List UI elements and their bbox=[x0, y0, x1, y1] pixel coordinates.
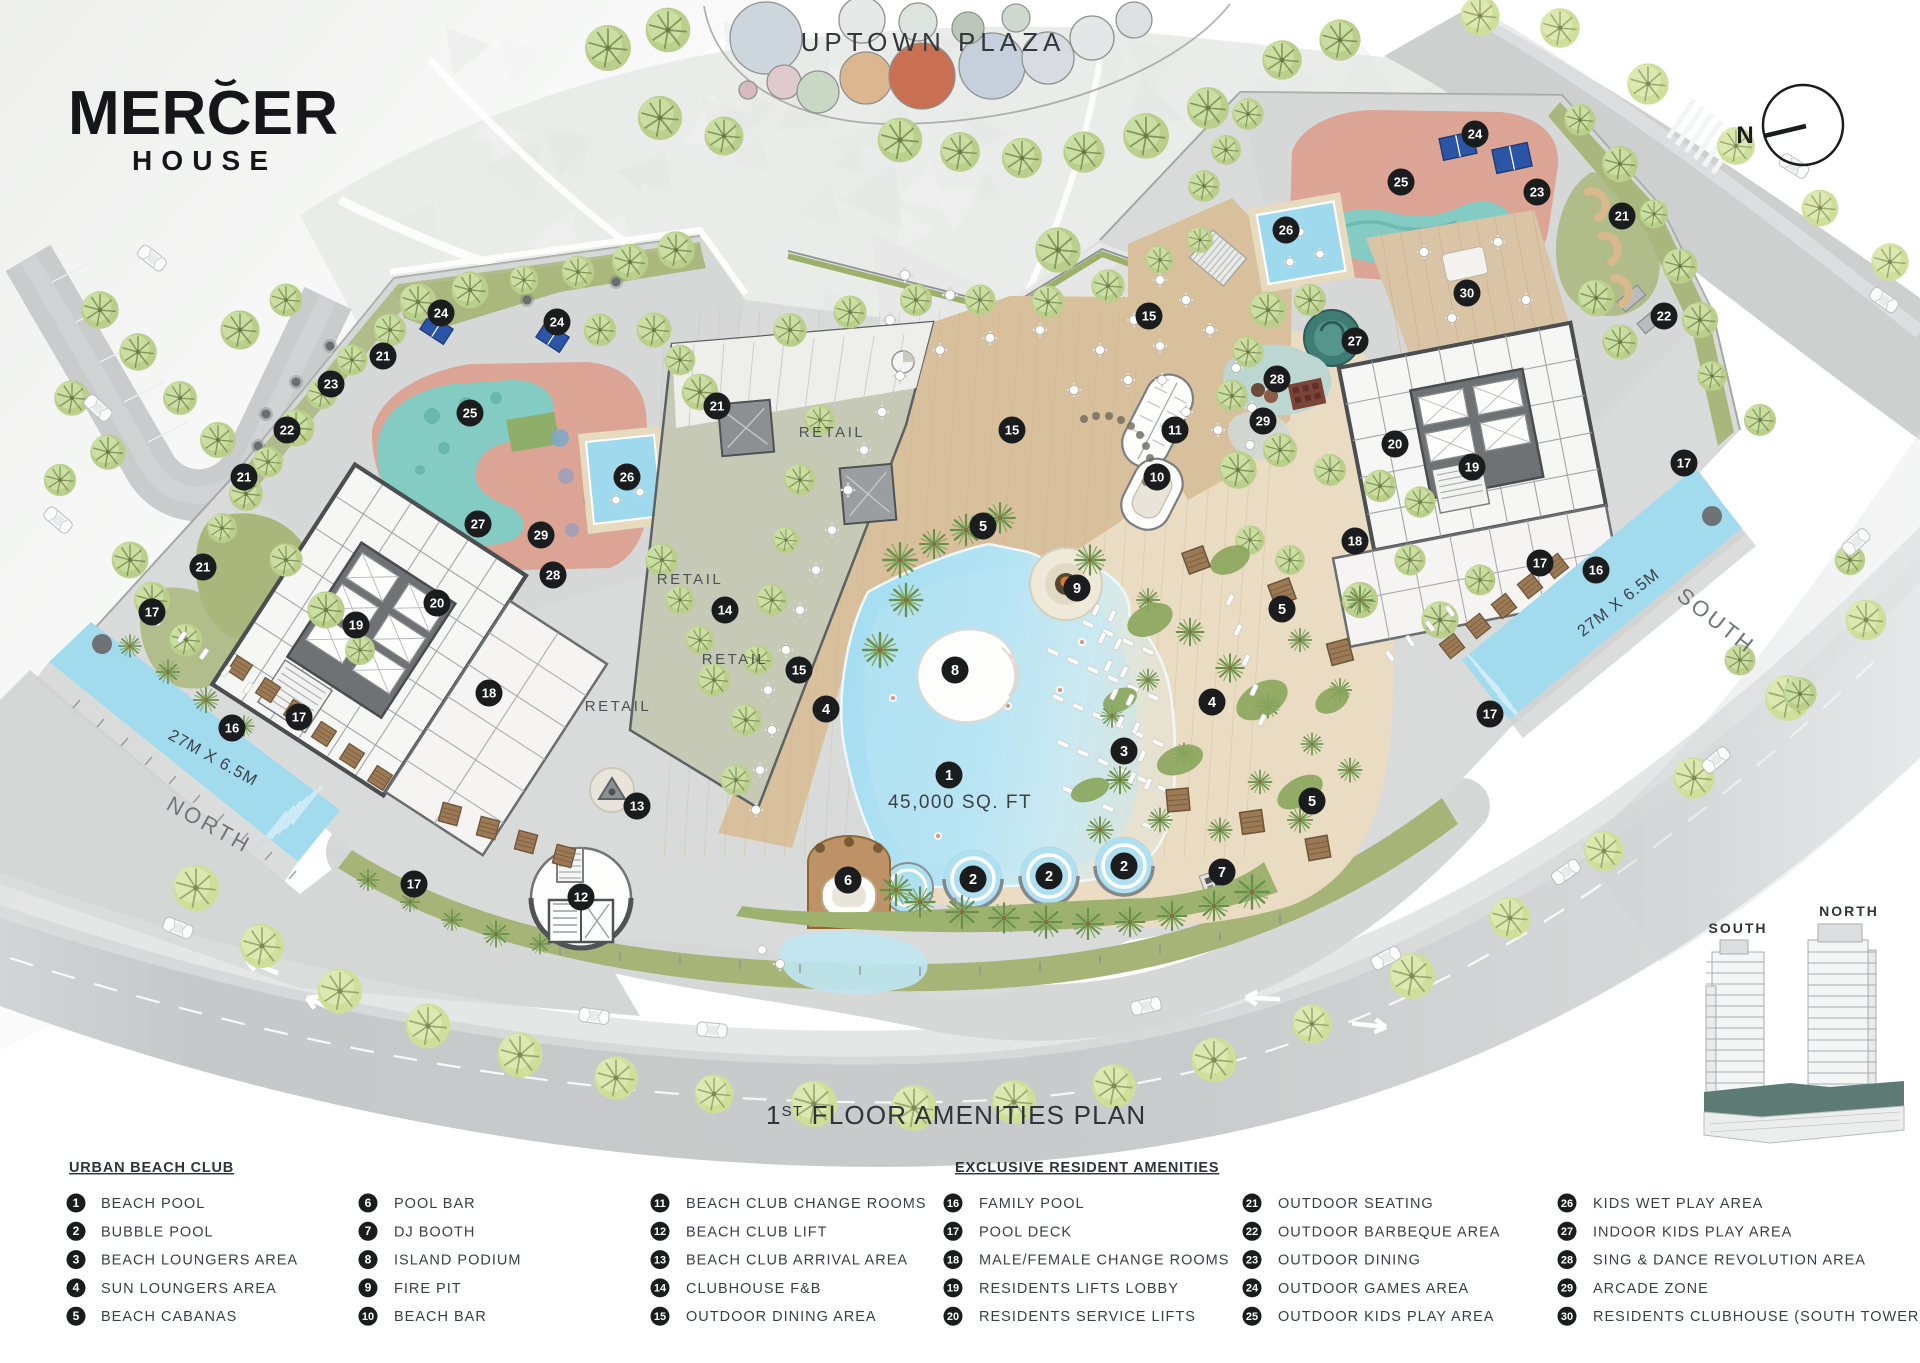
svg-text:RETAIL: RETAIL bbox=[702, 651, 768, 668]
svg-text:45,000 SQ. FT: 45,000 SQ. FT bbox=[888, 792, 1032, 813]
svg-text:17: 17 bbox=[1677, 456, 1691, 471]
svg-text:1: 1 bbox=[945, 768, 953, 784]
svg-text:FIRE PIT: FIRE PIT bbox=[394, 1281, 462, 1297]
svg-text:MALE/FEMALE CHANGE ROOMS: MALE/FEMALE CHANGE ROOMS bbox=[979, 1253, 1229, 1269]
svg-text:29: 29 bbox=[534, 528, 548, 543]
svg-text:18: 18 bbox=[1348, 534, 1362, 549]
svg-text:15: 15 bbox=[1005, 423, 1019, 438]
svg-text:5: 5 bbox=[979, 519, 987, 535]
svg-text:19: 19 bbox=[947, 1283, 959, 1295]
svg-text:UPTOWN PLAZA: UPTOWN PLAZA bbox=[801, 27, 1066, 57]
svg-text:POOL DECK: POOL DECK bbox=[979, 1224, 1072, 1240]
svg-text:3: 3 bbox=[1120, 744, 1128, 760]
svg-text:5: 5 bbox=[1278, 602, 1286, 618]
svg-text:BEACH CLUB ARRIVAL AREA: BEACH CLUB ARRIVAL AREA bbox=[686, 1253, 908, 1269]
svg-text:27: 27 bbox=[1561, 1226, 1573, 1238]
svg-text:RESIDENTS SERVICE LIFTS: RESIDENTS SERVICE LIFTS bbox=[979, 1309, 1196, 1325]
svg-text:24: 24 bbox=[434, 306, 449, 321]
svg-text:OUTDOOR SEATING: OUTDOOR SEATING bbox=[1278, 1196, 1434, 1212]
svg-text:22: 22 bbox=[280, 423, 294, 438]
svg-text:NORTH: NORTH bbox=[1819, 903, 1879, 919]
svg-text:1: 1 bbox=[73, 1196, 80, 1210]
svg-text:23: 23 bbox=[324, 377, 338, 392]
svg-text:13: 13 bbox=[654, 1254, 666, 1266]
svg-text:28: 28 bbox=[546, 568, 560, 583]
svg-text:2: 2 bbox=[1120, 859, 1128, 875]
svg-text:25: 25 bbox=[1394, 175, 1408, 190]
svg-text:27: 27 bbox=[1348, 334, 1362, 349]
svg-text:20: 20 bbox=[947, 1311, 959, 1323]
svg-text:16: 16 bbox=[225, 721, 239, 736]
svg-text:2: 2 bbox=[969, 872, 977, 888]
svg-text:15: 15 bbox=[1142, 309, 1156, 324]
svg-text:BEACH CABANAS: BEACH CABANAS bbox=[101, 1309, 237, 1325]
svg-text:4: 4 bbox=[1208, 695, 1216, 711]
svg-text:28: 28 bbox=[1270, 372, 1284, 387]
svg-text:RESIDENTS CLUBHOUSE (SOUTH TOW: RESIDENTS CLUBHOUSE (SOUTH TOWER) bbox=[1593, 1309, 1920, 1325]
svg-text:20: 20 bbox=[1388, 437, 1402, 452]
svg-text:19: 19 bbox=[349, 618, 363, 633]
svg-text:21: 21 bbox=[376, 349, 390, 364]
svg-text:N: N bbox=[1736, 122, 1753, 149]
svg-text:OUTDOOR DINING AREA: OUTDOOR DINING AREA bbox=[686, 1309, 877, 1325]
svg-text:10: 10 bbox=[362, 1311, 374, 1323]
svg-text:24: 24 bbox=[1246, 1283, 1259, 1295]
svg-text:21: 21 bbox=[710, 399, 724, 414]
svg-text:21: 21 bbox=[1246, 1198, 1258, 1210]
svg-text:17: 17 bbox=[292, 710, 306, 725]
svg-text:INDOOR KIDS PLAY AREA: INDOOR KIDS PLAY AREA bbox=[1593, 1224, 1792, 1240]
svg-text:OUTDOOR KIDS PLAY AREA: OUTDOOR KIDS PLAY AREA bbox=[1278, 1309, 1494, 1325]
svg-text:30: 30 bbox=[1460, 286, 1474, 301]
svg-text:27: 27 bbox=[471, 517, 485, 532]
svg-text:6: 6 bbox=[844, 873, 852, 889]
svg-text:14: 14 bbox=[718, 603, 733, 618]
svg-text:OUTDOOR GAMES AREA: OUTDOOR GAMES AREA bbox=[1278, 1281, 1469, 1297]
svg-text:12: 12 bbox=[654, 1226, 666, 1238]
svg-text:6: 6 bbox=[365, 1196, 372, 1210]
svg-text:19: 19 bbox=[1465, 460, 1479, 475]
svg-text:17: 17 bbox=[947, 1226, 959, 1238]
svg-text:14: 14 bbox=[654, 1283, 667, 1295]
svg-text:URBAN BEACH CLUB: URBAN BEACH CLUB bbox=[69, 1160, 234, 1176]
svg-text:8: 8 bbox=[365, 1252, 372, 1266]
svg-text:5: 5 bbox=[1308, 794, 1316, 810]
svg-text:17: 17 bbox=[1533, 556, 1547, 571]
svg-text:5: 5 bbox=[73, 1309, 80, 1323]
svg-text:4: 4 bbox=[73, 1281, 80, 1295]
svg-text:28: 28 bbox=[1561, 1254, 1573, 1266]
svg-text:21: 21 bbox=[1615, 209, 1629, 224]
svg-text:7: 7 bbox=[365, 1224, 372, 1238]
svg-text:9: 9 bbox=[365, 1281, 372, 1295]
svg-text:26: 26 bbox=[1561, 1198, 1573, 1210]
svg-text:ISLAND PODIUM: ISLAND PODIUM bbox=[394, 1253, 521, 1269]
svg-text:10: 10 bbox=[1150, 470, 1164, 485]
svg-text:8: 8 bbox=[951, 663, 959, 679]
svg-text:23: 23 bbox=[1530, 185, 1544, 200]
svg-text:15: 15 bbox=[792, 663, 806, 678]
svg-text:2: 2 bbox=[73, 1224, 80, 1238]
svg-text:25: 25 bbox=[463, 406, 477, 421]
svg-text:11: 11 bbox=[1168, 423, 1182, 438]
svg-text:22: 22 bbox=[1246, 1226, 1258, 1238]
svg-text:SING & DANCE REVOLUTION AREA: SING & DANCE REVOLUTION AREA bbox=[1593, 1253, 1866, 1269]
svg-text:SOUTH: SOUTH bbox=[1709, 920, 1768, 936]
svg-text:12: 12 bbox=[574, 890, 588, 905]
svg-text:24: 24 bbox=[550, 315, 565, 330]
svg-text:17: 17 bbox=[1483, 707, 1497, 722]
svg-text:1ST FLOOR AMENITIES PLAN: 1ST FLOOR AMENITIES PLAN bbox=[766, 1100, 1146, 1130]
svg-text:BEACH POOL: BEACH POOL bbox=[101, 1196, 205, 1212]
svg-text:KIDS WET PLAY AREA: KIDS WET PLAY AREA bbox=[1593, 1196, 1763, 1212]
svg-text:BEACH LOUNGERS AREA: BEACH LOUNGERS AREA bbox=[101, 1253, 298, 1269]
svg-text:17: 17 bbox=[407, 877, 421, 892]
svg-text:ARCADE ZONE: ARCADE ZONE bbox=[1593, 1281, 1709, 1297]
svg-text:22: 22 bbox=[1657, 309, 1671, 324]
svg-text:25: 25 bbox=[1246, 1311, 1258, 1323]
svg-text:23: 23 bbox=[1246, 1254, 1258, 1266]
svg-text:15: 15 bbox=[654, 1311, 666, 1323]
svg-text:3: 3 bbox=[73, 1252, 80, 1266]
svg-text:4: 4 bbox=[822, 702, 830, 718]
svg-text:RETAIL: RETAIL bbox=[799, 424, 865, 441]
svg-text:OUTDOOR BARBEQUE AREA: OUTDOOR BARBEQUE AREA bbox=[1278, 1224, 1500, 1240]
svg-text:OUTDOOR DINING: OUTDOOR DINING bbox=[1278, 1253, 1421, 1269]
svg-text:2: 2 bbox=[1045, 869, 1053, 885]
svg-text:20: 20 bbox=[430, 596, 444, 611]
svg-text:BUBBLE POOL: BUBBLE POOL bbox=[101, 1224, 214, 1240]
svg-text:FAMILY POOL: FAMILY POOL bbox=[979, 1196, 1085, 1212]
svg-text:21: 21 bbox=[196, 560, 210, 575]
svg-text:29: 29 bbox=[1561, 1283, 1573, 1295]
svg-text:17: 17 bbox=[145, 605, 159, 620]
svg-text:18: 18 bbox=[947, 1254, 959, 1266]
svg-text:CLUBHOUSE F&B: CLUBHOUSE F&B bbox=[686, 1281, 821, 1297]
svg-text:18: 18 bbox=[482, 686, 496, 701]
svg-text:SUN LOUNGERS AREA: SUN LOUNGERS AREA bbox=[101, 1281, 277, 1297]
svg-text:16: 16 bbox=[1589, 563, 1603, 578]
svg-text:MERCER: MERCER bbox=[68, 79, 340, 148]
svg-text:13: 13 bbox=[630, 799, 644, 814]
svg-text:24: 24 bbox=[1468, 127, 1483, 142]
svg-text:7: 7 bbox=[1218, 865, 1226, 881]
svg-text:RETAIL: RETAIL bbox=[585, 698, 651, 715]
svg-text:21: 21 bbox=[237, 470, 251, 485]
svg-text:BEACH CLUB LIFT: BEACH CLUB LIFT bbox=[686, 1224, 828, 1240]
svg-text:29: 29 bbox=[1256, 414, 1270, 429]
svg-text:HOUSE: HOUSE bbox=[132, 145, 280, 176]
svg-text:BEACH CLUB CHANGE ROOMS: BEACH CLUB CHANGE ROOMS bbox=[686, 1196, 927, 1212]
svg-text:11: 11 bbox=[654, 1198, 666, 1210]
svg-text:26: 26 bbox=[620, 470, 634, 485]
svg-text:RETAIL: RETAIL bbox=[657, 571, 723, 588]
svg-text:26: 26 bbox=[1279, 223, 1293, 238]
svg-text:POOL BAR: POOL BAR bbox=[394, 1196, 476, 1212]
svg-text:RESIDENTS LIFTS LOBBY: RESIDENTS LIFTS LOBBY bbox=[979, 1281, 1179, 1297]
svg-text:30: 30 bbox=[1561, 1311, 1573, 1323]
svg-text:DJ BOOTH: DJ BOOTH bbox=[394, 1224, 475, 1240]
svg-text:9: 9 bbox=[1073, 581, 1081, 597]
svg-text:BEACH BAR: BEACH BAR bbox=[394, 1309, 487, 1325]
svg-text:EXCLUSIVE RESIDENT AMENITIES: EXCLUSIVE RESIDENT AMENITIES bbox=[955, 1160, 1219, 1176]
svg-text:16: 16 bbox=[947, 1198, 959, 1210]
